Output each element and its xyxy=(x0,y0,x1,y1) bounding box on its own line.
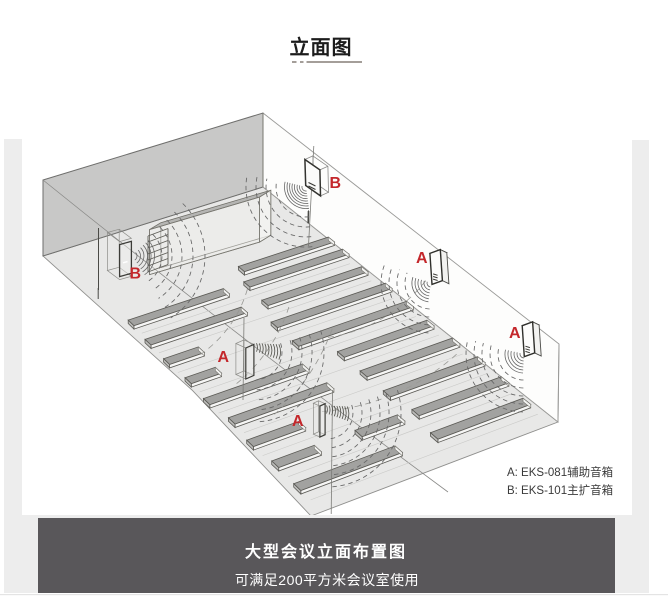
svg-text:B: B xyxy=(330,175,342,192)
svg-text:B: EKS-101主扩音箱: B: EKS-101主扩音箱 xyxy=(507,483,613,497)
svg-text:立面图: 立面图 xyxy=(290,35,353,59)
svg-text:A: A xyxy=(218,349,230,366)
svg-text:B: B xyxy=(130,266,142,283)
svg-text:可满足200平方米会议室使用: 可满足200平方米会议室使用 xyxy=(235,572,419,588)
svg-text:A: EKS-081辅助音箱: A: EKS-081辅助音箱 xyxy=(507,465,613,479)
svg-text:A: A xyxy=(509,325,521,342)
svg-text:A: A xyxy=(292,413,304,430)
svg-text:A: A xyxy=(416,250,428,267)
svg-text:大型会议立面布置图: 大型会议立面布置图 xyxy=(245,542,407,561)
